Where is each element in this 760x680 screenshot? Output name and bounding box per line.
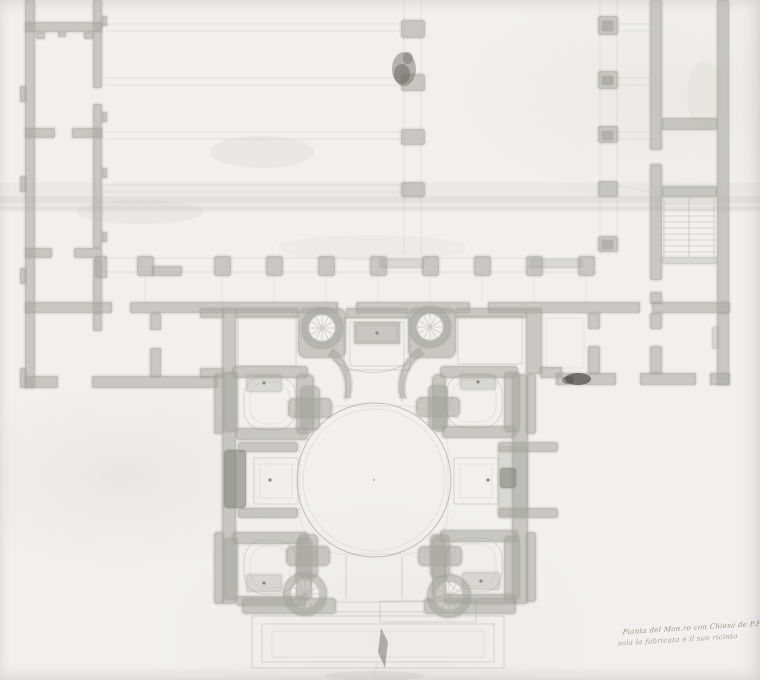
- scanned-plan-sheet: Pianta del Mon.ro con Chiesa de P.P. del…: [0, 0, 760, 680]
- entrance-steps: [252, 616, 504, 676]
- corner-chapel-north-east: [432, 366, 520, 438]
- paper-stains: [76, 61, 723, 680]
- cloister-south-arcade: [95, 256, 598, 302]
- church-facade: [242, 598, 516, 622]
- side-altar-west: [224, 442, 298, 518]
- spiral-staircase-north-west: [301, 307, 343, 349]
- ink-blot: [392, 52, 416, 86]
- side-altar-east: [454, 442, 558, 518]
- floor-plan-drawing: [0, 0, 760, 680]
- spiral-staircase-north-east: [409, 306, 451, 348]
- church-block: [200, 306, 562, 676]
- high-altar-recess: [344, 318, 410, 370]
- corner-chapel-south-west: [224, 532, 312, 606]
- right-wing: [650, 0, 729, 349]
- cloister-east-pier-column: [598, 0, 650, 256]
- fold-crease: [0, 182, 760, 212]
- corner-chapel-north-west: [224, 366, 314, 440]
- corner-chapel-south-east: [432, 530, 520, 604]
